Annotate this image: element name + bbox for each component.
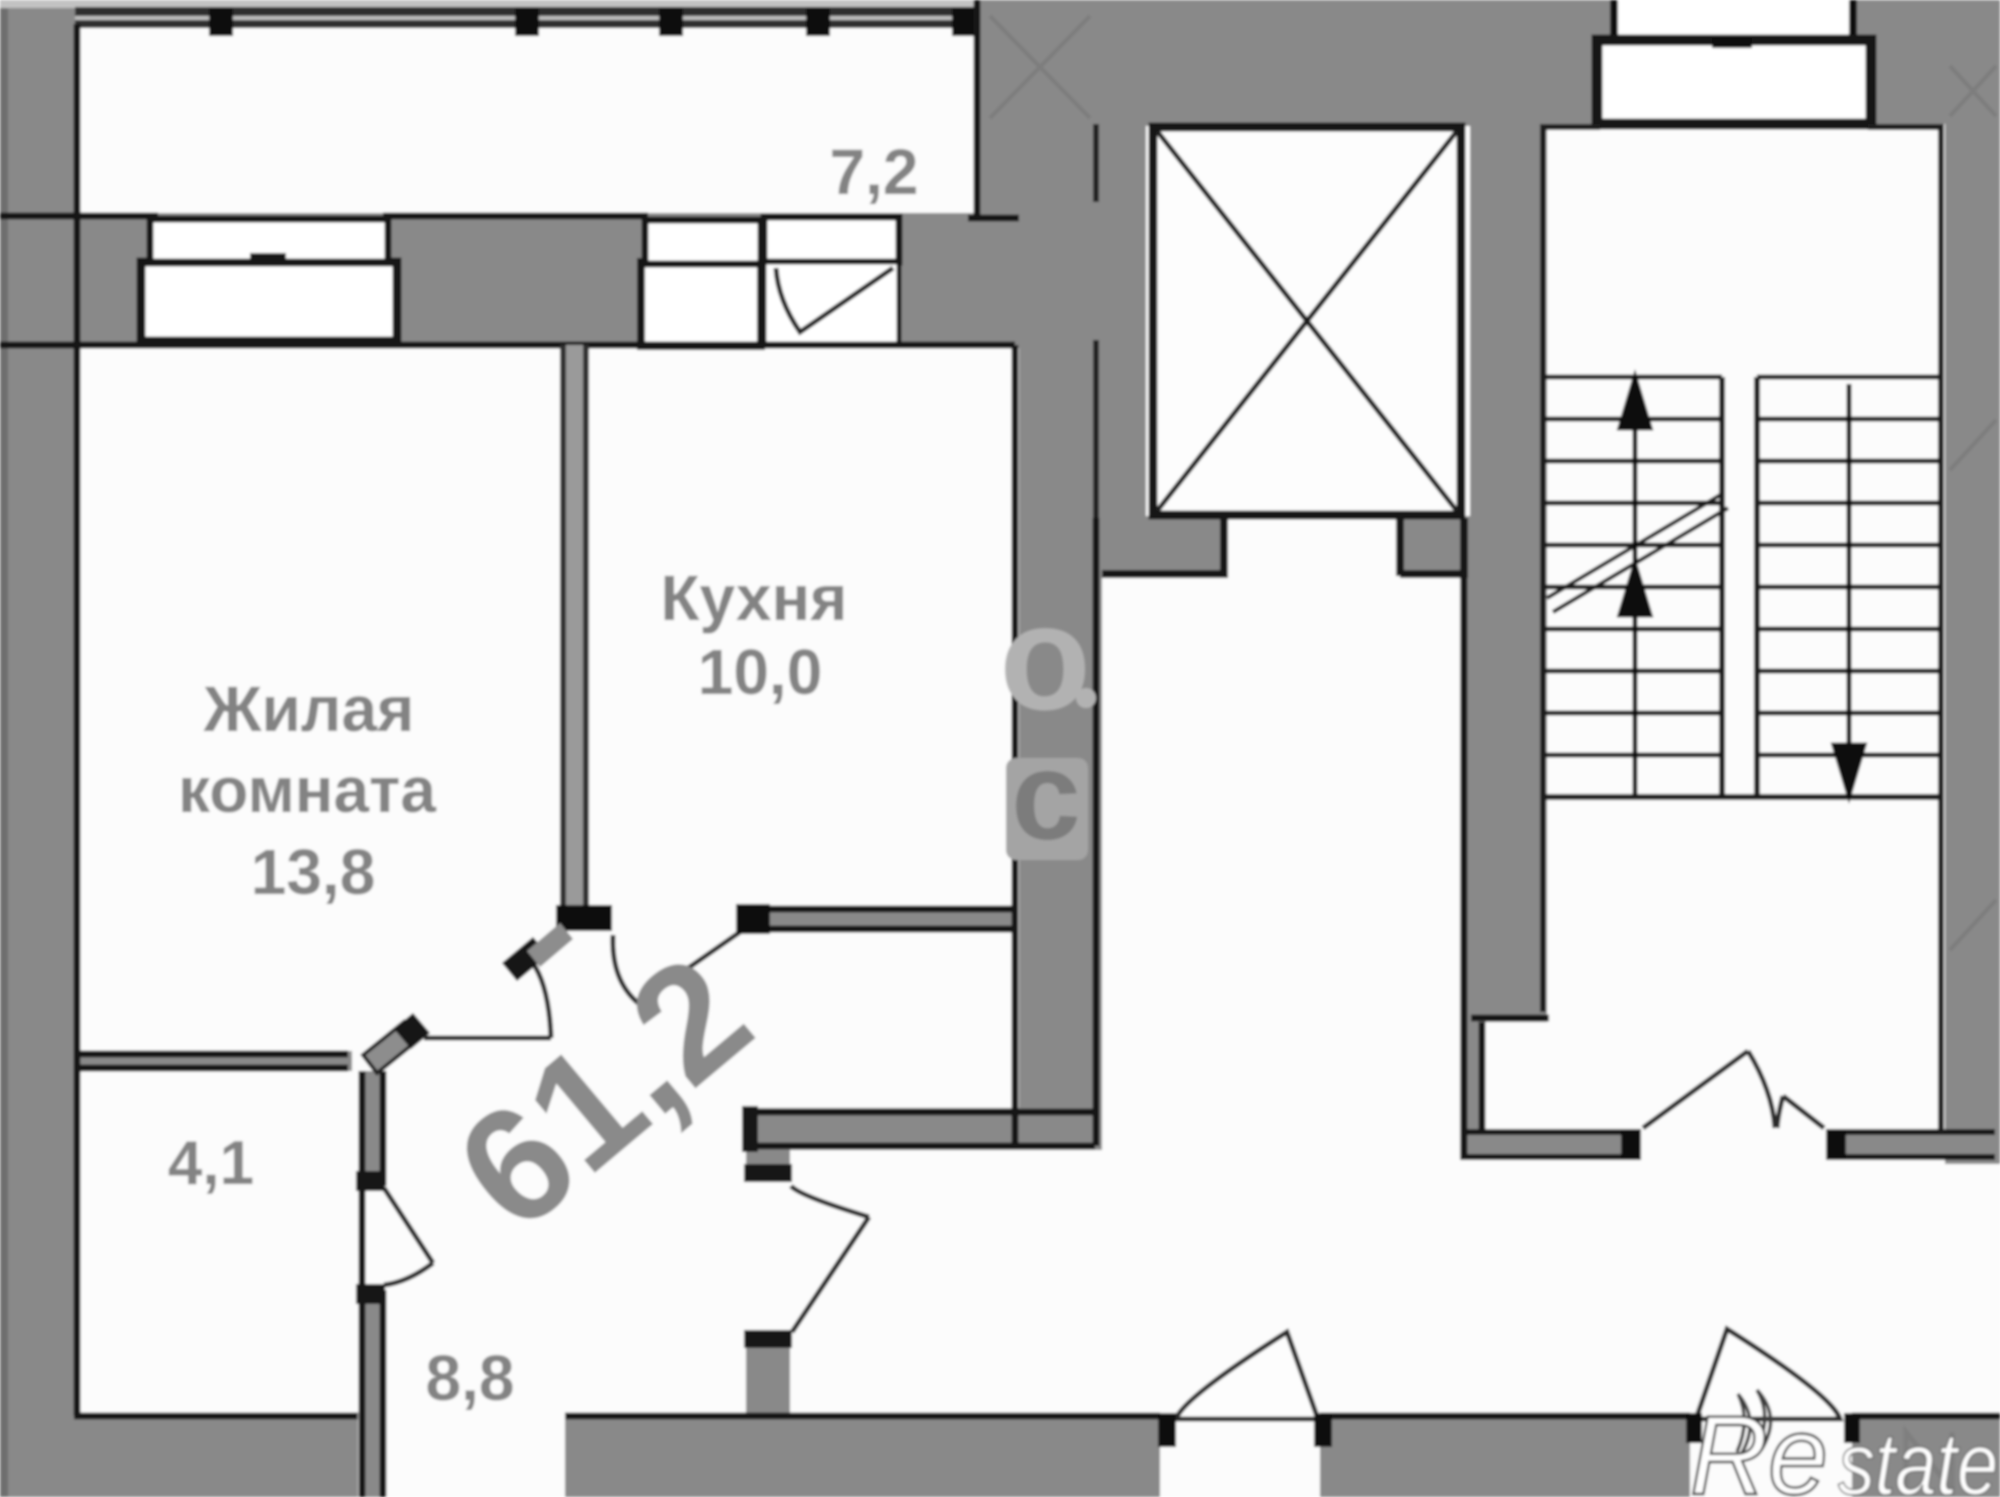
svg-text:10,0: 10,0 xyxy=(698,636,823,708)
svg-text:Re: Re xyxy=(1690,1393,1828,1497)
svg-text:Кухня: Кухня xyxy=(660,562,847,634)
svg-text:Жилая: Жилая xyxy=(203,673,415,745)
svg-text:8,8: 8,8 xyxy=(426,1342,515,1414)
svg-text:4,1: 4,1 xyxy=(168,1129,254,1198)
svg-text:о: о xyxy=(999,573,1091,741)
svg-text:с: с xyxy=(1011,727,1081,866)
svg-text:state: state xyxy=(1838,1414,1998,1497)
svg-text:7,2: 7,2 xyxy=(830,136,919,208)
svg-text:комната: комната xyxy=(178,754,436,826)
svg-text:13,8: 13,8 xyxy=(251,836,376,908)
